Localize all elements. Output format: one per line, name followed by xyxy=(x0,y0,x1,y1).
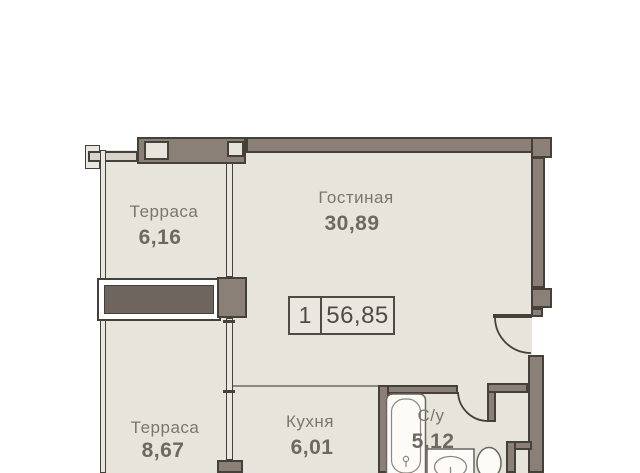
toilet xyxy=(477,448,501,473)
room-label-living: Гостиная xyxy=(318,188,393,208)
room-area-living: 30,89 xyxy=(324,212,379,236)
unit-badge-total-area: 56,85 xyxy=(322,298,393,333)
unit-badge: 1 56,85 xyxy=(288,296,395,335)
floorplan: Терраса 6,16 Гостиная 30,89 Терраса 8,67… xyxy=(0,0,640,473)
room-label-kitchen: Кухня xyxy=(286,412,334,432)
bathroom-door-swing-arc xyxy=(458,392,488,421)
fixtures-layer xyxy=(0,0,640,473)
unit-badge-rooms-count: 1 xyxy=(290,298,322,333)
door-swing-arc xyxy=(495,317,531,353)
door-leaf xyxy=(493,314,532,318)
room-area-bathroom: 5,12 xyxy=(412,430,455,454)
room-label-terrace-upper: Терраса xyxy=(130,202,199,222)
room-area-terrace-lower: 8,67 xyxy=(142,439,185,463)
entrance-door xyxy=(493,314,532,353)
room-label-terrace-lower: Терраса xyxy=(131,418,200,438)
room-area-terrace-upper: 6,16 xyxy=(139,226,182,250)
room-label-bathroom: С/у xyxy=(418,406,445,426)
room-area-kitchen: 6,01 xyxy=(291,436,334,460)
